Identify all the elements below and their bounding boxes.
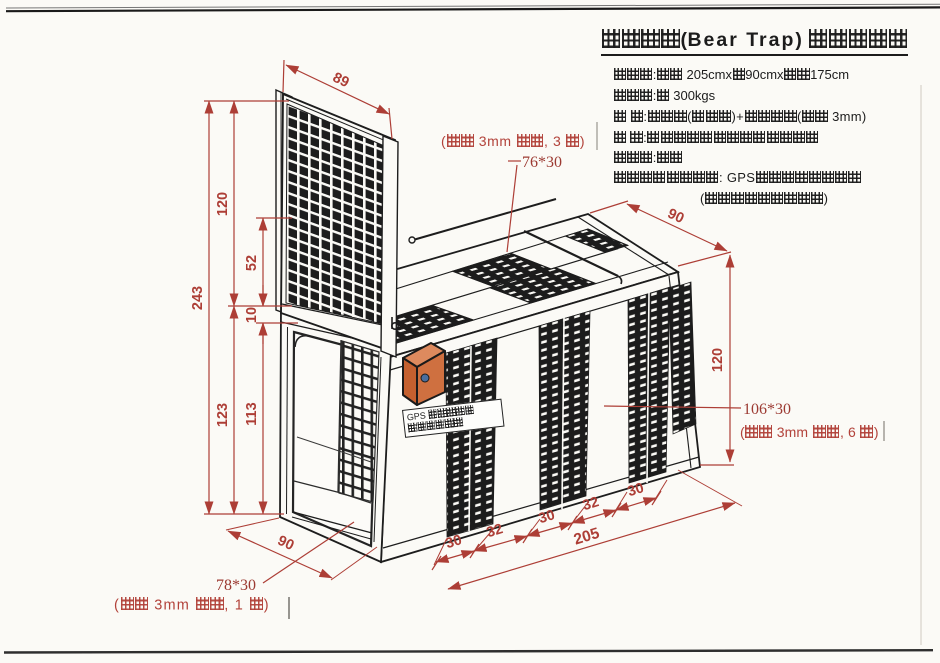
- svg-text:123: 123: [215, 403, 231, 427]
- svg-text:52: 52: [244, 255, 260, 271]
- svg-text:10: 10: [244, 307, 260, 323]
- svg-text:90: 90: [275, 533, 296, 554]
- svg-text:76*30: 76*30: [522, 154, 562, 171]
- svg-text:243: 243: [190, 286, 206, 310]
- svg-text:106*30: 106*30: [743, 401, 791, 418]
- svg-text:120: 120: [215, 192, 231, 216]
- svg-text:78*30: 78*30: [216, 577, 256, 594]
- svg-text:120: 120: [710, 348, 726, 372]
- svg-text:205: 205: [572, 525, 602, 549]
- svg-text:113: 113: [244, 402, 260, 425]
